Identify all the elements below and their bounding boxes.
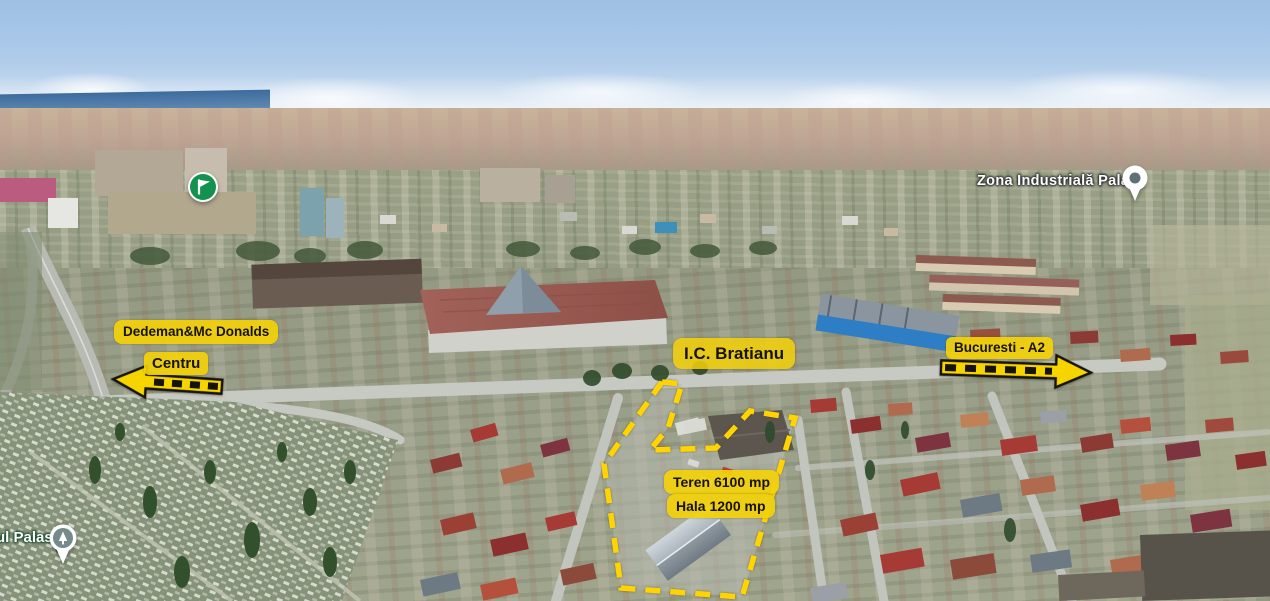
dedeman-mcdonalds-label: Dedeman&Mc Donalds (114, 320, 278, 344)
cemetery-pin-icon (50, 525, 77, 565)
map-canvas[interactable]: Dedeman&Mc Donalds Centru I.C. Bratianu … (0, 0, 1270, 601)
flag-marker[interactable] (186, 170, 220, 204)
hala-area-label: Hala 1200 mp (667, 494, 775, 518)
place-pin-icon (1123, 166, 1148, 202)
cemetery-palas-label: ul Palas (0, 529, 53, 546)
ic-bratianu-label: I.C. Bratianu (673, 338, 795, 369)
bucuresti-a2-label: Bucuresti - A2 (946, 337, 1053, 359)
teren-area-label: Teren 6100 mp (664, 470, 779, 494)
property-boundary-dashed (0, 0, 1270, 601)
centru-label: Centru (144, 352, 208, 375)
cemetery-pin[interactable] (47, 522, 79, 566)
zona-industriala-palas-label: Zona Industrială Palas (977, 173, 1138, 189)
zona-palas-pin[interactable] (1120, 164, 1150, 204)
